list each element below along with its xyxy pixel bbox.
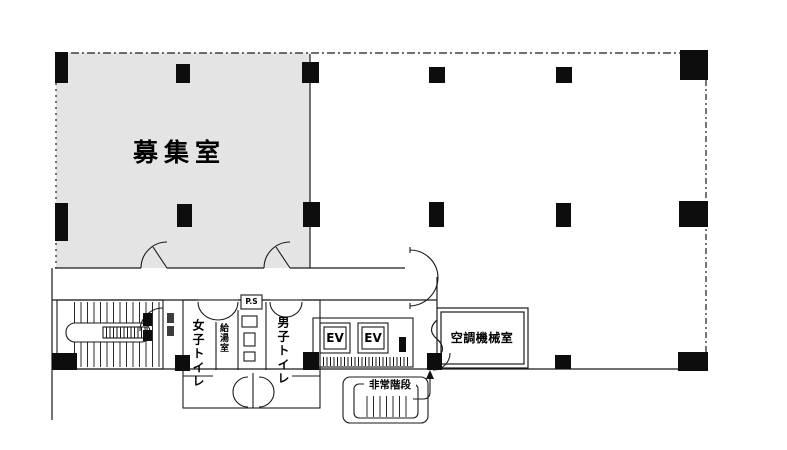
floor-plan: 募集室 女子トイレ 給湯室 男子トイレ P.S EV EV 空調機械室 非常階段: [0, 0, 787, 450]
room-label-mens-toilet: 男子トイレ: [277, 316, 289, 386]
room-label-vacant: 募集室: [133, 140, 226, 165]
room-label-machine-room: 空調機械室: [450, 332, 514, 344]
room-label-elevator-1: EV: [321, 332, 349, 344]
room-label-kitchenette: 給湯室: [218, 323, 227, 353]
room-label-pipe-space: P.S: [241, 298, 262, 306]
room-label-emergency-stairs: 非常階段: [364, 380, 416, 391]
room-label-elevator-2: EV: [359, 332, 387, 344]
room-label-womens-toilet: 女子トイレ: [192, 319, 204, 389]
